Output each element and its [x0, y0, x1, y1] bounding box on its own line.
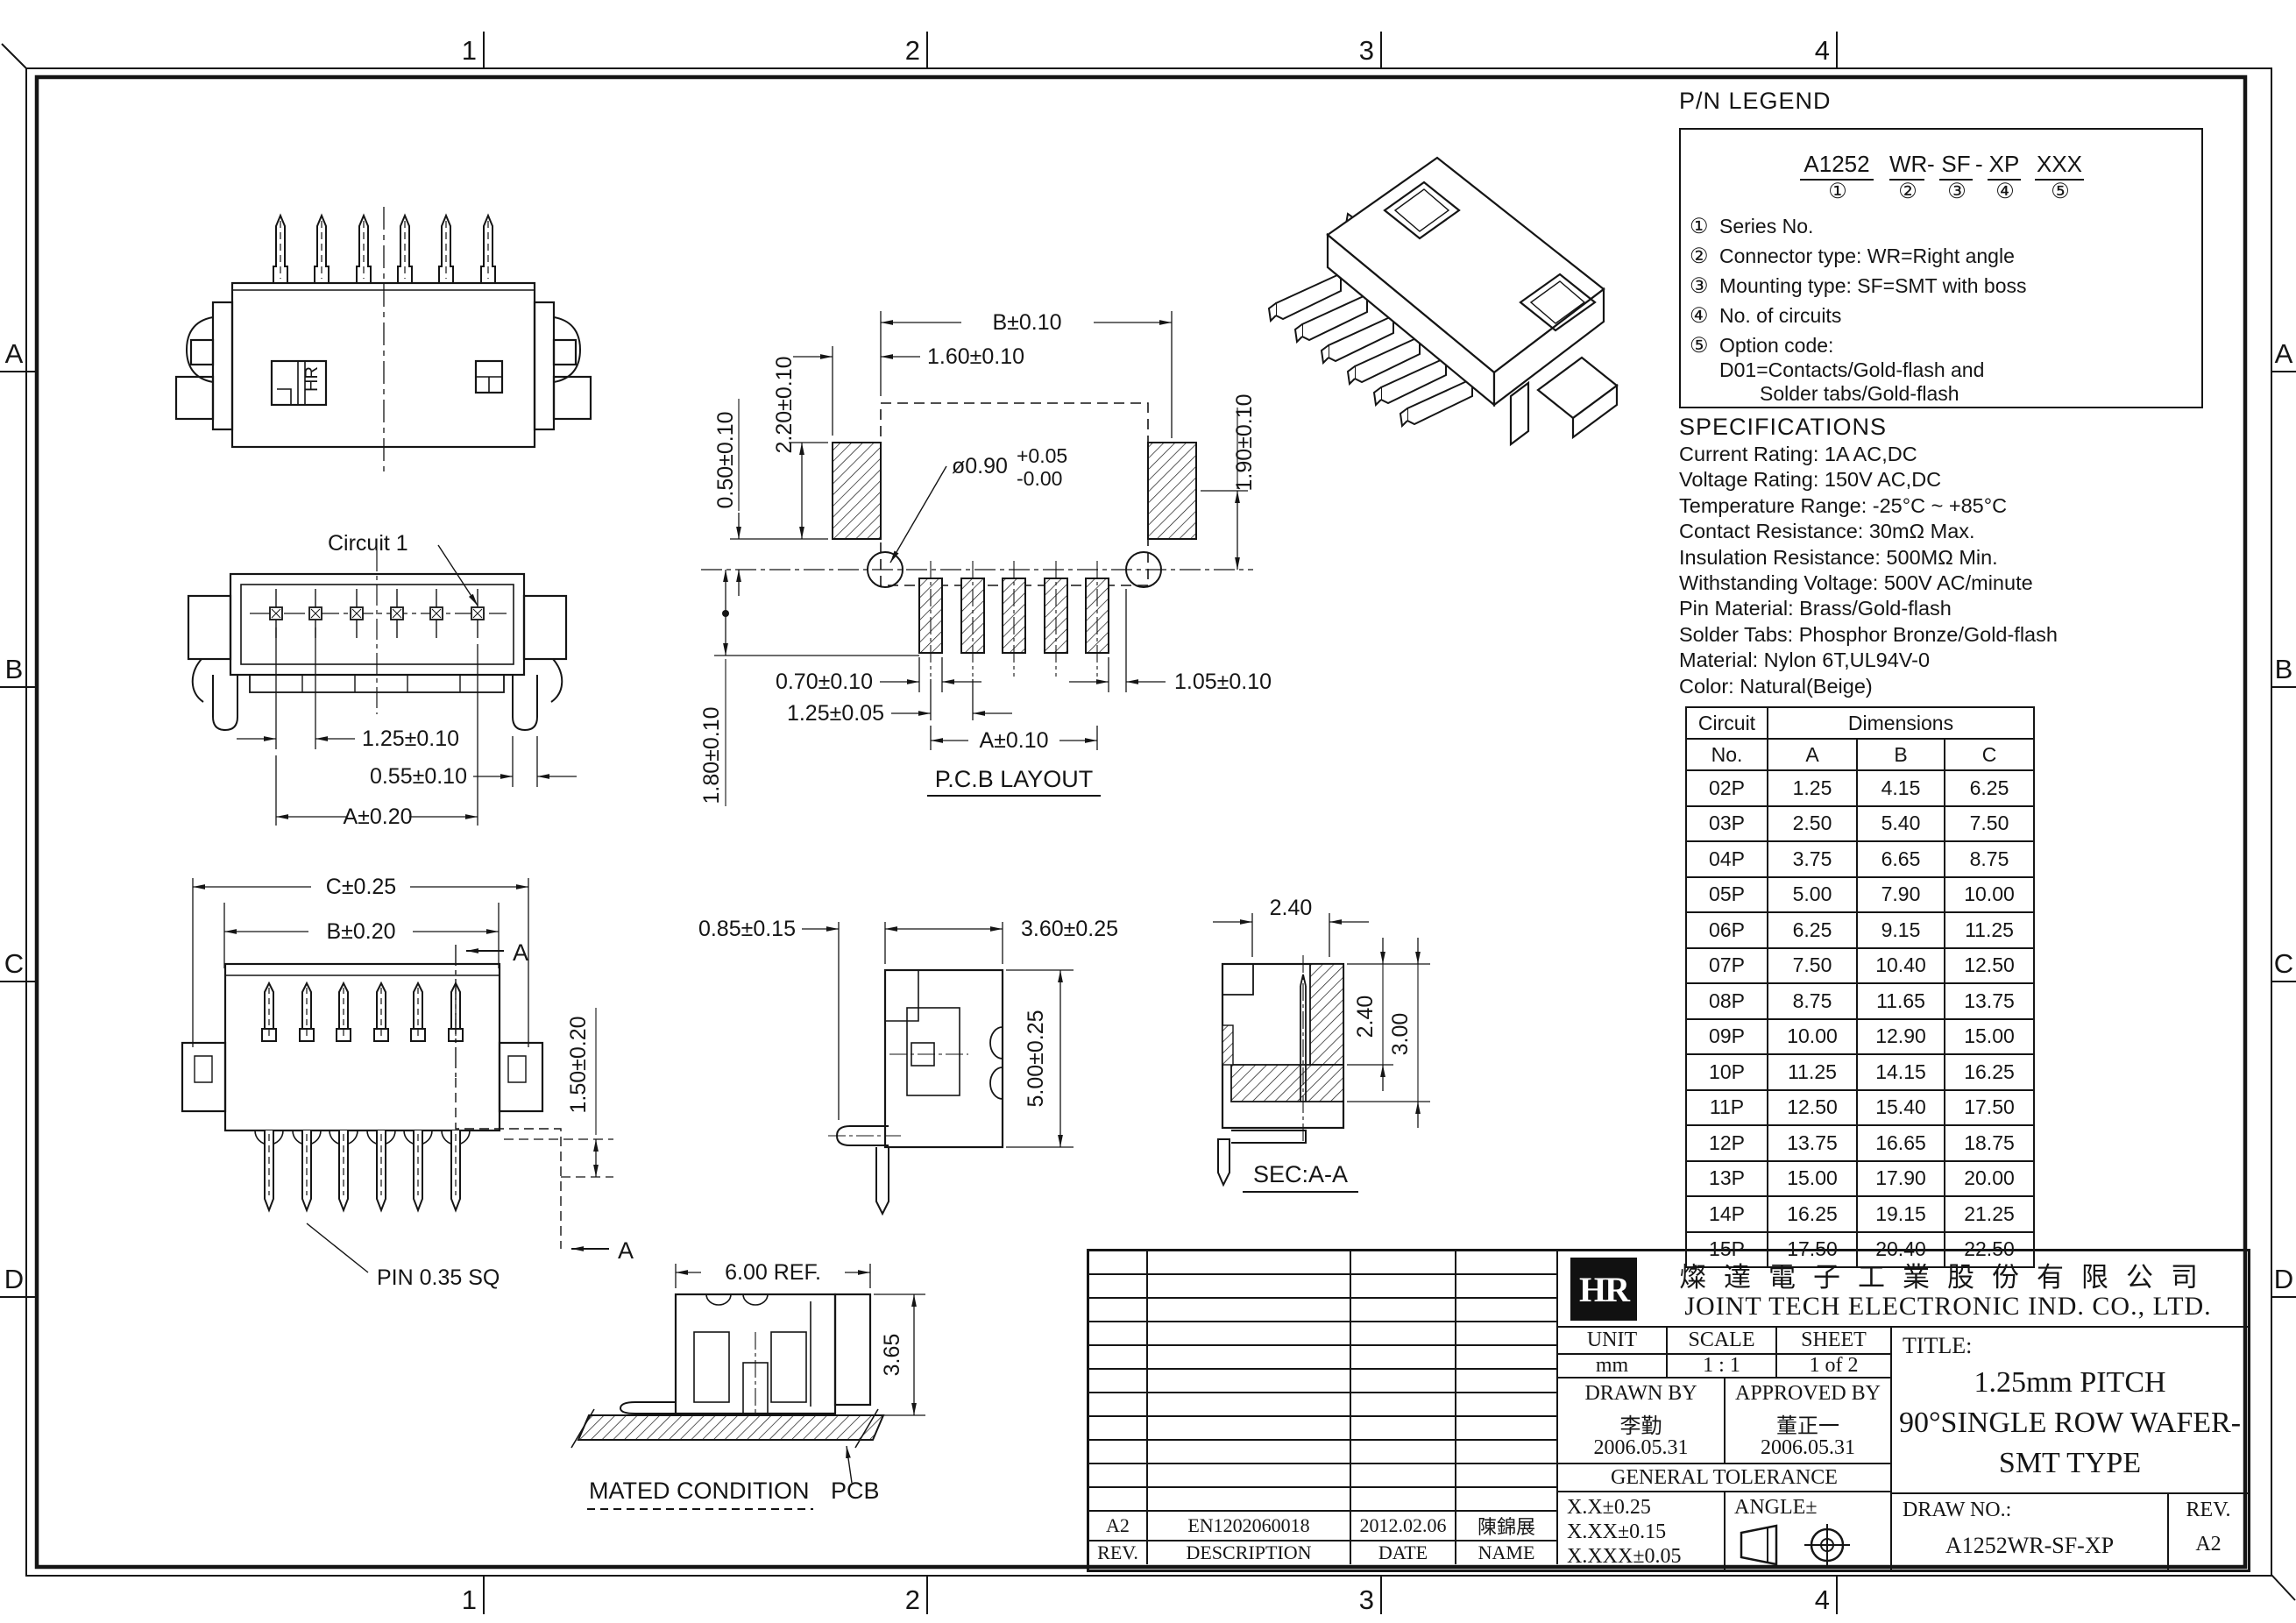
view-bottom: C±0.25 B±0.20	[182, 875, 634, 1290]
dim-height-text: 1.50±0.20	[566, 1016, 591, 1113]
revision-cell	[1456, 1464, 1558, 1486]
revision-empty-row	[1089, 1299, 1558, 1322]
zone-label: A	[2275, 338, 2293, 369]
circled-5: ⑤	[2047, 179, 2073, 204]
company-logo: HR	[1570, 1258, 1637, 1321]
rev-label: REV.	[2169, 1499, 2248, 1522]
revision-cell	[1351, 1393, 1456, 1415]
circuit-table-cell: 7.50	[1768, 948, 1857, 984]
pn-legend-item: Solder tabs/Gold-flash	[1760, 382, 1959, 406]
circuit-table-cell: 2.50	[1768, 806, 1857, 842]
zone-label: 1	[462, 35, 477, 66]
tolerance-line: X.XX±0.15	[1567, 1520, 1666, 1544]
tolerance-line: X.XXX±0.05	[1567, 1545, 1682, 1569]
revision-cell	[1351, 1441, 1456, 1463]
general-tolerance-label: GENERAL TOLERANCE	[1558, 1464, 1892, 1492]
title-label: TITLE:	[1903, 1333, 1972, 1359]
dim-070-text: 0.70±0.10	[776, 670, 873, 694]
revision-cell	[1351, 1322, 1456, 1344]
revision-cell: DESCRIPTION	[1148, 1541, 1351, 1564]
pn-code-mount: SF	[1939, 151, 1973, 181]
zone-label: B	[2275, 654, 2293, 684]
revision-cell	[1456, 1346, 1558, 1368]
corner-trim-mark	[2, 44, 27, 69]
circuit-table-cell: 12.50	[1768, 1090, 1857, 1126]
circuit-table-cell: 05P	[1686, 877, 1768, 913]
circuit-table-cell: 14P	[1686, 1196, 1768, 1232]
dim-160-text: 1.60±0.10	[927, 344, 1024, 369]
spec-line: Contact Resistance: 30mΩ Max.	[1679, 519, 2249, 544]
col-header-no: No.	[1686, 739, 1768, 770]
angle-label: ANGLE±	[1734, 1496, 1818, 1520]
pn-legend-item: ②Connector type: WR=Right angle	[1690, 244, 2015, 269]
revision-header-row: REV.DESCRIPTIONDATENAME	[1089, 1541, 1558, 1564]
circuit-table-cell: 12.50	[1945, 948, 2034, 984]
revision-cell	[1456, 1299, 1558, 1321]
zone-label: 2	[905, 35, 920, 66]
drawn-by-date: 2006.05.31	[1558, 1436, 1724, 1460]
revision-cell: REV.	[1089, 1541, 1148, 1564]
approved-by-name: 董正一	[1726, 1408, 1890, 1439]
circuit-table-cell: 07P	[1686, 948, 1768, 984]
revision-cell	[1456, 1251, 1558, 1273]
circuit-table-row: 12P13.7516.6518.75	[1686, 1125, 2034, 1161]
view-side: 0.85±0.15 3.60±0.25 5.00±0.25	[698, 917, 1118, 1214]
spec-line: Solder Tabs: Phosphor Bronze/Gold-flash	[1679, 622, 2249, 648]
spec-line: Withstanding Voltage: 500V AC/minute	[1679, 571, 2249, 596]
circuit-table-row: 06P6.259.1511.25	[1686, 912, 2034, 948]
circuit-table-cell: 1.25	[1768, 770, 1857, 806]
revision-cell: DATE	[1351, 1541, 1456, 1564]
revision-cell	[1148, 1488, 1351, 1510]
dim-240-top-text: 2.40	[1270, 896, 1313, 920]
dim-a-text: A±0.20	[343, 804, 412, 829]
circuit-table-cell: 12.90	[1857, 1019, 1945, 1055]
title-block: A2EN12020600182012.02.06陳錦展REV.DESCRIPTI…	[1087, 1249, 2250, 1572]
draw-no-label: DRAW NO.:	[1903, 1499, 2011, 1522]
circuit-table-cell: 18.75	[1945, 1125, 2034, 1161]
title-cell: TITLE: 1.25mm PITCH 90°SINGLE ROW WAFER-…	[1892, 1328, 2248, 1494]
dim-height	[504, 1008, 613, 1177]
revision-empty-row	[1089, 1488, 1558, 1512]
pcb-slab	[578, 1415, 883, 1440]
dim-180-text: 1.80±0.10	[699, 706, 724, 804]
view-pcb-layout: B±0.10 1.60±0.10 2.20±0.10 0.50±0.10	[699, 310, 1272, 806]
spec-line: Material: Nylon 6T,UL94V-0	[1679, 648, 2249, 673]
revision-empty-row	[1089, 1464, 1558, 1488]
circuit-table-cell: 04P	[1686, 841, 1768, 877]
pn-legend-item: D01=Contacts/Gold-flash and	[1719, 358, 1984, 382]
mated-condition-label: MATED CONDITION	[589, 1478, 810, 1504]
revision-cell	[1148, 1299, 1351, 1321]
sheet-value: 1 of 2	[1777, 1355, 1892, 1378]
circuit-table-cell: 11.25	[1768, 1054, 1857, 1090]
zone-label: 2	[905, 1584, 920, 1615]
revision-empty-row	[1089, 1370, 1558, 1393]
circuit-table-cell: 10P	[1686, 1054, 1768, 1090]
zone-label: 1	[462, 1584, 477, 1615]
spec-line: Color: Natural(Beige)	[1679, 674, 2249, 699]
revision-cell	[1089, 1322, 1148, 1344]
solder-pad-left	[833, 443, 881, 539]
circuit-table-cell: 9.15	[1857, 912, 1945, 948]
solder-pad-right	[1148, 443, 1196, 539]
revision-empty-row	[1089, 1441, 1558, 1464]
hr-marking: HR	[272, 361, 326, 405]
revision-cell	[1089, 1488, 1148, 1510]
circuit-table-cell: 15.40	[1857, 1090, 1945, 1126]
circuit-table-cell: 5.00	[1768, 877, 1857, 913]
circuit-table-row: 08P8.7511.6513.75	[1686, 983, 2034, 1019]
dim-365-text: 3.65	[880, 1334, 904, 1377]
dim-240-right-text: 2.40	[1353, 996, 1378, 1038]
circuit-table-cell: 09P	[1686, 1019, 1768, 1055]
revision-empty-row	[1089, 1346, 1558, 1370]
revision-cell	[1089, 1346, 1148, 1368]
revision-cell	[1089, 1393, 1148, 1415]
revision-cell	[1351, 1251, 1456, 1273]
circuit-table-cell: 08P	[1686, 983, 1768, 1019]
sheet-label: SHEET	[1777, 1328, 1892, 1355]
revision-table: A2EN12020600182012.02.06陳錦展REV.DESCRIPTI…	[1089, 1251, 1558, 1564]
drawing-title-line: SMT TYPE	[1892, 1447, 2248, 1480]
dim-300-text: 3.00	[1388, 1013, 1413, 1056]
spec-line: Current Rating: 1A AC,DC	[1679, 442, 2249, 467]
revision-cell	[1089, 1370, 1148, 1392]
dim-pitch-text: 1.25±0.10	[362, 726, 459, 751]
zone-label: D	[4, 1264, 24, 1294]
circuit-table-cell: 7.90	[1857, 877, 1945, 913]
circuit-table-cell: 10.40	[1857, 948, 1945, 984]
pin-note-text: PIN 0.35 SQ	[377, 1265, 500, 1290]
zone-label: C	[2274, 948, 2293, 979]
connector-outline-dashed	[881, 403, 1148, 585]
scale-value: 1 : 1	[1668, 1355, 1777, 1378]
revision-empty-row	[1089, 1322, 1558, 1346]
zone-label: 4	[1815, 1584, 1830, 1615]
revision-cell	[1089, 1299, 1148, 1321]
circled-3: ③	[1944, 179, 1970, 204]
revision-cell	[1351, 1488, 1456, 1510]
section-mark-a: A	[618, 1237, 634, 1264]
revision-cell	[1148, 1417, 1351, 1439]
revision-cell	[1089, 1251, 1148, 1273]
revision-cell	[1089, 1441, 1148, 1463]
zone-label: 4	[1815, 35, 1830, 66]
pn-legend-item: ④No. of circuits	[1690, 303, 1841, 329]
hole-tol-plus: +0.05	[1017, 444, 1067, 467]
circuit-table-cell: 19.15	[1857, 1196, 1945, 1232]
view-isometric	[1269, 158, 1617, 444]
circuit-table-cell: 14.15	[1857, 1054, 1945, 1090]
revision-cell: NAME	[1456, 1541, 1558, 1564]
circuit-table-cell: 6.25	[1768, 912, 1857, 948]
revision-cell	[1148, 1322, 1351, 1344]
scale-label: SCALE	[1668, 1328, 1777, 1355]
circuit-table-cell: 10.00	[1768, 1019, 1857, 1055]
revision-cell	[1456, 1370, 1558, 1392]
pn-legend-item: ⑤Option code:	[1690, 333, 1833, 358]
dim-085-text: 0.85±0.15	[698, 917, 796, 941]
revision-cell: 2012.02.06	[1351, 1512, 1456, 1540]
revision-cell	[1089, 1417, 1148, 1439]
dim-tab	[473, 736, 577, 787]
rev-cell: REV. A2	[2169, 1494, 2248, 1570]
approved-by-label: APPROVED BY	[1726, 1382, 1890, 1406]
pn-code-option: XXX	[2035, 151, 2084, 181]
revision-cell	[1148, 1275, 1351, 1297]
view-top: HR	[176, 207, 591, 477]
pcb-label: PCB	[831, 1478, 880, 1504]
circuit-table-cell: 15.00	[1768, 1161, 1857, 1197]
col-header-c: C	[1945, 739, 2034, 770]
dim-600-text: 6.00 REF.	[725, 1260, 821, 1285]
draw-no-value: A1252WR-SF-XP	[1892, 1533, 2167, 1559]
drawing-title-line: 90°SINGLE ROW WAFER-	[1892, 1407, 2248, 1440]
col-header-a: A	[1768, 739, 1857, 770]
circuit-table-cell: 16.65	[1857, 1125, 1945, 1161]
revision-cell	[1148, 1464, 1351, 1486]
dim-a-text: A±0.10	[979, 728, 1048, 753]
section-aa-label: SEC:A-A	[1253, 1161, 1348, 1187]
revision-cell	[1148, 1251, 1351, 1273]
circuit-table-cell: 11.25	[1945, 912, 2034, 948]
dim-050-text: 0.50±0.10	[713, 411, 738, 508]
unit-value: mm	[1558, 1355, 1668, 1378]
pn-code-circuits: XP	[1988, 151, 2021, 181]
circuit-table-row: 09P10.0012.9015.00	[1686, 1019, 2034, 1055]
hr-marking-text: HR	[302, 366, 322, 392]
hatched-wall	[1310, 964, 1343, 1065]
revision-cell	[1351, 1299, 1456, 1321]
circuit-table-cell: 6.65	[1857, 841, 1945, 877]
hole-dia-text: ø0.90	[952, 454, 1008, 478]
drawn-by-label: DRAWN BY	[1558, 1382, 1724, 1406]
revision-cell	[1351, 1275, 1456, 1297]
col-header-b: B	[1857, 739, 1945, 770]
circuit-table-row: 11P12.5015.4017.50	[1686, 1090, 2034, 1126]
circuit-table-row: 07P7.5010.4012.50	[1686, 948, 2034, 984]
circuit-table-cell: 21.25	[1945, 1196, 2034, 1232]
dim-pitch	[237, 627, 355, 749]
spec-line: Voltage Rating: 150V AC,DC	[1679, 467, 2249, 493]
circuit-table-row: 03P2.505.407.50	[1686, 806, 2034, 842]
dim-125-text: 1.25±0.05	[787, 701, 884, 726]
rev-value: A2	[2169, 1533, 2248, 1556]
dim-500-text: 5.00±0.25	[1024, 1010, 1048, 1107]
revision-cell	[1456, 1275, 1558, 1297]
tolerance-line: X.X±0.25	[1567, 1496, 1651, 1520]
tolerance-values-cell: X.X±0.25 X.XX±0.15 X.XXX±0.05	[1558, 1492, 1726, 1570]
zone-label: B	[5, 654, 24, 684]
circuit-table-cell: 17.90	[1857, 1161, 1945, 1197]
view-section-aa: 2.40 2.40 3.00 SEC:A-A	[1213, 896, 1430, 1192]
circuit-table-row: 02P1.254.156.25	[1686, 770, 2034, 806]
circuit-table-cell: 5.40	[1857, 806, 1945, 842]
revision-empty-row	[1089, 1275, 1558, 1299]
draw-no-cell: DRAW NO.: A1252WR-SF-XP	[1892, 1494, 2169, 1570]
circuit-table-cell: 12P	[1686, 1125, 1768, 1161]
pn-legend-title: P/N LEGEND	[1679, 88, 1832, 115]
angle-projection-cell: ANGLE±	[1726, 1492, 1892, 1570]
zone-label: C	[4, 948, 24, 979]
revision-cell	[1351, 1417, 1456, 1439]
revision-cell: A2	[1089, 1512, 1148, 1540]
drawing-sheet: 1 2 3 4 1 2 3 4 A B C D A B C D	[0, 0, 2296, 1623]
circuit-table-cell: 11P	[1686, 1090, 1768, 1126]
revision-cell	[1456, 1488, 1558, 1510]
circuit-table-row: 13P15.0017.9020.00	[1686, 1161, 2034, 1197]
circuit-dimensions-table: Circuit Dimensions No. A B C 02P1.254.15…	[1685, 706, 2035, 1268]
circled-4: ④	[1992, 179, 2018, 204]
dim-b-text: B±0.10	[992, 310, 1061, 335]
circuit-table-cell: 11.65	[1857, 983, 1945, 1019]
circuit-table-cell: 16.25	[1945, 1054, 2034, 1090]
pn-legend-item: ③Mounting type: SF=SMT with boss	[1690, 273, 2026, 299]
corner-trim-mark	[2271, 1575, 2295, 1600]
pn-legend-item: ①Series No.	[1690, 214, 1813, 239]
pn-code-type: WR	[1889, 151, 1924, 181]
dim-tab-text: 0.55±0.10	[370, 764, 467, 789]
projection-symbol-icon	[1738, 1524, 1878, 1566]
dim-b-text: B±0.20	[326, 919, 395, 944]
revision-cell	[1089, 1275, 1148, 1297]
section-mark-a: A	[513, 939, 528, 966]
circuit-table-row: 10P11.2514.1516.25	[1686, 1054, 2034, 1090]
specifications: SPECIFICATIONS Current Rating: 1A AC,DC …	[1679, 412, 2249, 699]
pn-code-dash: -	[1975, 151, 1983, 178]
pn-code-series: A1252	[1800, 151, 1874, 181]
revision-cell	[1089, 1464, 1148, 1486]
circuit-table-cell: 06P	[1686, 912, 1768, 948]
dim-190-text: 1.90±0.10	[1232, 393, 1257, 491]
revision-cell	[1456, 1322, 1558, 1344]
circuit-table-cell: 17.50	[1945, 1090, 2034, 1126]
revision-empty-row	[1089, 1417, 1558, 1441]
circuit-table-cell: 16.25	[1768, 1196, 1857, 1232]
circuit-table-cell: 4.15	[1857, 770, 1945, 806]
hatched-base	[1231, 1065, 1343, 1102]
circuit-table-cell: 10.00	[1945, 877, 2034, 913]
spec-line: Insulation Resistance: 500MΩ Min.	[1679, 545, 2249, 571]
revision-cell: EN1202060018	[1148, 1512, 1351, 1540]
circuit-table-row: 14P16.2519.1521.25	[1686, 1196, 2034, 1232]
circuit-table-cell: 13.75	[1768, 1125, 1857, 1161]
revision-cell: 陳錦展	[1456, 1512, 1558, 1540]
spec-line: Temperature Range: -25°C ~ +85°C	[1679, 493, 2249, 519]
approved-by-cell: APPROVED BY 董正一 2006.05.31	[1726, 1378, 1892, 1464]
spec-line: Pin Material: Brass/Gold-flash	[1679, 596, 2249, 621]
circuit-table-row: 05P5.007.9010.00	[1686, 877, 2034, 913]
zone-label: A	[5, 338, 24, 369]
dim-360-text: 3.60±0.25	[1021, 917, 1118, 941]
circuit-table-cell: 8.75	[1945, 841, 2034, 877]
circuit-table-cell: 13.75	[1945, 983, 2034, 1019]
revision-cell	[1148, 1393, 1351, 1415]
circuit-table-cell: 7.50	[1945, 806, 2034, 842]
pn-legend-box: A1252 WR - SF - XP XXX ① ② ③ ④ ⑤ ①Series…	[1679, 128, 2203, 408]
revision-empty-row	[1089, 1251, 1558, 1275]
revision-cell	[1148, 1441, 1351, 1463]
view-mated: 6.00 REF. 3.65 MATED CONDITION PCB	[571, 1260, 925, 1509]
circuit1-label: Circuit 1	[328, 531, 408, 556]
company-row: HR 燦達電子工業股份有限公司 JOINT TECH ELECTRONIC IN…	[1558, 1251, 2248, 1328]
revision-empty-row	[1089, 1393, 1558, 1417]
circuit-table-cell: 3.75	[1768, 841, 1857, 877]
hole-tol-minus: -0.00	[1017, 467, 1062, 490]
dim-c-text: C±0.25	[326, 875, 396, 899]
view-front: Circuit 1 1.25±0.10 0.55±0.10 A±0.20	[188, 531, 577, 829]
dim-105-text: 1.05±0.10	[1174, 670, 1272, 694]
pn-code-dash: -	[1927, 151, 1935, 178]
company-name-cn: 燦達電子工業股份有限公司	[1653, 1255, 2242, 1294]
col-header-dimensions: Dimensions	[1768, 707, 2034, 739]
revision-cell	[1148, 1346, 1351, 1368]
specifications-title: SPECIFICATIONS	[1679, 412, 2249, 442]
zone-label: D	[2274, 1264, 2293, 1294]
drawing-title-line: 1.25mm PITCH	[1892, 1366, 2248, 1400]
drawn-by-name: 李勤	[1558, 1408, 1724, 1439]
pin-pads	[919, 561, 1109, 677]
circuit-table-cell: 03P	[1686, 806, 1768, 842]
circuit-table-cell: 20.00	[1945, 1161, 2034, 1197]
circuit-table-cell: 8.75	[1768, 983, 1857, 1019]
drawn-by-cell: DRAWN BY 李勤 2006.05.31	[1558, 1378, 1726, 1464]
circuit-table-cell: 02P	[1686, 770, 1768, 806]
zone-label: 3	[1359, 35, 1374, 66]
dim-220-text: 2.20±0.10	[772, 356, 797, 453]
revision-cell	[1351, 1346, 1456, 1368]
company-name-en: JOINT TECH ELECTRONIC IND. CO., LTD.	[1646, 1292, 2250, 1322]
circuit-table-cell: 13P	[1686, 1161, 1768, 1197]
col-header-circuit: Circuit	[1686, 707, 1768, 739]
revision-cell	[1351, 1464, 1456, 1486]
zone-label: 3	[1359, 1584, 1374, 1615]
revision-entry-row: A2EN12020600182012.02.06陳錦展	[1089, 1512, 1558, 1541]
circled-1: ①	[1825, 179, 1851, 204]
approved-by-date: 2006.05.31	[1726, 1436, 1890, 1460]
revision-cell	[1456, 1441, 1558, 1463]
revision-cell	[1456, 1417, 1558, 1439]
circuit-table-cell: 6.25	[1945, 770, 2034, 806]
circuit-table-row: 04P3.756.658.75	[1686, 841, 2034, 877]
circled-2: ②	[1895, 179, 1921, 204]
unit-label: UNIT	[1558, 1328, 1668, 1355]
pcb-layout-label: P.C.B LAYOUT	[935, 766, 1094, 792]
revision-cell	[1148, 1370, 1351, 1392]
circuit-table-cell: 15.00	[1945, 1019, 2034, 1055]
revision-cell	[1351, 1370, 1456, 1392]
revision-cell	[1456, 1393, 1558, 1415]
